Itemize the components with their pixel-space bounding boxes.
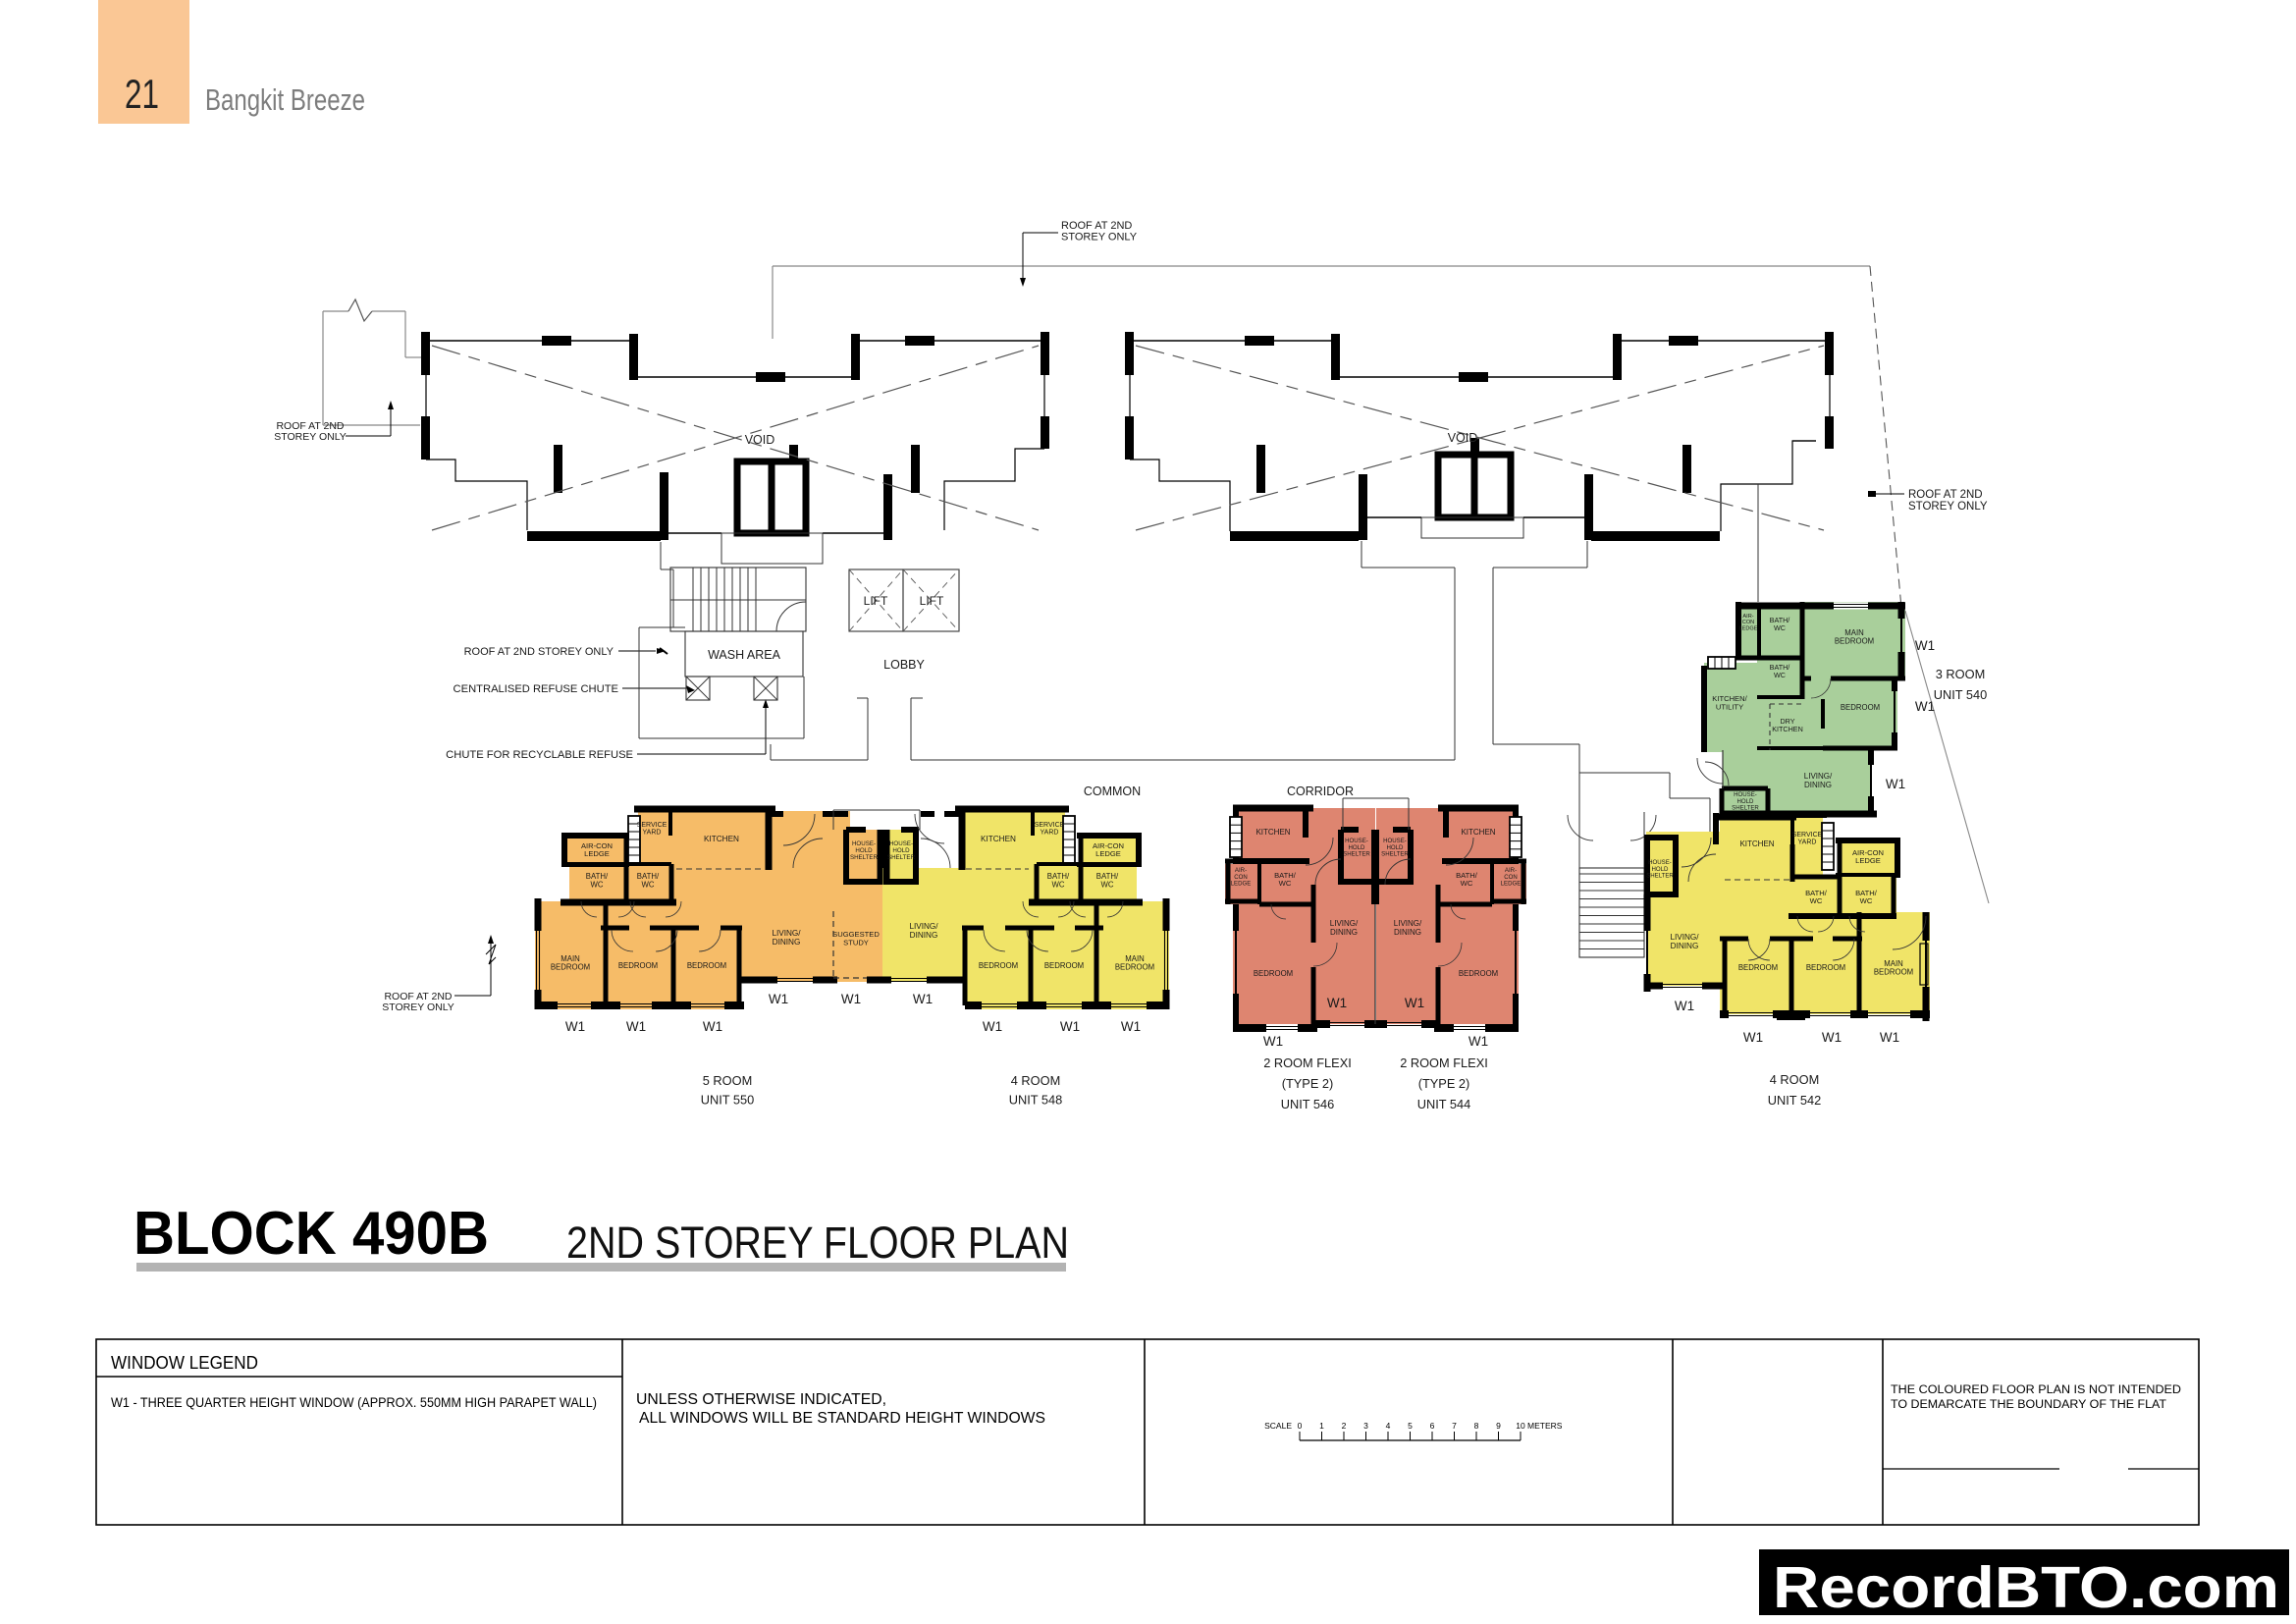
- svg-text:W1: W1: [913, 992, 933, 1006]
- svg-text:W1: W1: [626, 1019, 646, 1034]
- svg-text:BEDROOM: BEDROOM: [551, 963, 590, 972]
- svg-text:STOREY ONLY: STOREY ONLY: [1908, 501, 1988, 513]
- svg-text:2 ROOM FLEXI: 2 ROOM FLEXI: [1400, 1056, 1488, 1070]
- svg-text:RecordBTO.com: RecordBTO.com: [1773, 1555, 2279, 1620]
- svg-text:SERVICE: SERVICE: [1035, 822, 1065, 829]
- svg-text:WC: WC: [1052, 880, 1065, 889]
- svg-text:KITCHEN: KITCHEN: [1739, 839, 1774, 848]
- svg-text:WC: WC: [1860, 896, 1873, 905]
- svg-text:W1: W1: [1327, 996, 1347, 1010]
- svg-text:LEDGE: LEDGE: [1855, 856, 1881, 865]
- svg-text:LEDGE: LEDGE: [584, 849, 610, 858]
- svg-text:W1: W1: [1886, 777, 1905, 791]
- svg-text:BEDROOM: BEDROOM: [1874, 968, 1913, 977]
- svg-text:YARD: YARD: [643, 830, 662, 837]
- svg-text:W1: W1: [1468, 1034, 1488, 1049]
- svg-text:LIVING/: LIVING/: [1330, 919, 1359, 928]
- svg-text:(TYPE 2): (TYPE 2): [1418, 1076, 1470, 1091]
- svg-text:W1: W1: [1405, 996, 1424, 1010]
- svg-text:DINING: DINING: [1804, 781, 1832, 789]
- svg-text:UNIT 548: UNIT 548: [1009, 1093, 1063, 1108]
- svg-text:LEDGE: LEDGE: [1739, 625, 1758, 631]
- svg-text:2: 2: [1342, 1421, 1347, 1431]
- svg-text:W1: W1: [1915, 699, 1935, 714]
- svg-text:SCALE: SCALE: [1264, 1421, 1292, 1431]
- svg-text:W1: W1: [703, 1019, 722, 1034]
- svg-text:SHELTER: SHELTER: [1343, 851, 1370, 858]
- svg-text:CENTRALISED REFUSE CHUTE: CENTRALISED REFUSE CHUTE: [454, 683, 618, 695]
- svg-text:KITCHEN: KITCHEN: [1461, 828, 1495, 837]
- svg-text:ROOF AT 2ND: ROOF AT 2ND: [1908, 489, 1983, 501]
- svg-text:KITCHEN: KITCHEN: [1772, 725, 1803, 733]
- svg-text:VOID: VOID: [1448, 431, 1478, 445]
- svg-text:SHELTER: SHELTER: [850, 854, 879, 861]
- svg-text:WC: WC: [1461, 879, 1473, 888]
- svg-text:8: 8: [1474, 1421, 1479, 1431]
- svg-text:LIVING/: LIVING/: [1394, 919, 1422, 928]
- svg-text:STUDY: STUDY: [843, 939, 869, 947]
- svg-text:LOBBY: LOBBY: [883, 658, 925, 672]
- svg-text:YARD: YARD: [1798, 839, 1817, 846]
- svg-text:SHELTER: SHELTER: [887, 854, 916, 861]
- svg-text:W1: W1: [769, 992, 788, 1006]
- svg-text:LIVING/: LIVING/: [772, 929, 801, 938]
- svg-text:SERVICE: SERVICE: [1792, 832, 1823, 839]
- svg-text:WC: WC: [1101, 880, 1114, 889]
- svg-text:UNIT 546: UNIT 546: [1281, 1097, 1335, 1111]
- svg-text:LIVING/: LIVING/: [909, 922, 938, 931]
- svg-text:W1: W1: [1263, 1034, 1283, 1049]
- svg-text:ROOF AT 2ND: ROOF AT 2ND: [1061, 220, 1132, 232]
- svg-text:4 ROOM: 4 ROOM: [1011, 1073, 1060, 1088]
- svg-text:5: 5: [1408, 1421, 1413, 1431]
- svg-text:DINING: DINING: [773, 938, 801, 947]
- svg-text:WC: WC: [1810, 896, 1823, 905]
- svg-text:LIFT: LIFT: [864, 594, 888, 608]
- svg-text:WC: WC: [1279, 879, 1292, 888]
- svg-text:BEDROOM: BEDROOM: [1841, 703, 1880, 712]
- svg-text:UNIT 540: UNIT 540: [1934, 687, 1988, 702]
- svg-text:0: 0: [1298, 1421, 1303, 1431]
- svg-text:2 ROOM FLEXI: 2 ROOM FLEXI: [1263, 1056, 1352, 1070]
- svg-text:BEDROOM: BEDROOM: [1044, 961, 1084, 970]
- svg-text:BEDROOM: BEDROOM: [687, 961, 726, 970]
- svg-text:6: 6: [1430, 1421, 1435, 1431]
- svg-text:LIVING/: LIVING/: [1670, 933, 1699, 942]
- svg-text:W1: W1: [1822, 1030, 1842, 1045]
- svg-text:W1: W1: [983, 1019, 1002, 1034]
- svg-text:(TYPE 2): (TYPE 2): [1282, 1076, 1334, 1091]
- svg-text:LEDGE: LEDGE: [1095, 849, 1121, 858]
- svg-text:UNIT 542: UNIT 542: [1768, 1093, 1822, 1108]
- svg-text:ROOF AT 2ND STOREY ONLY: ROOF AT 2ND STOREY ONLY: [464, 646, 614, 658]
- svg-text:BEDROOM: BEDROOM: [1806, 963, 1845, 972]
- svg-text:3: 3: [1363, 1421, 1368, 1431]
- svg-text:21: 21: [125, 71, 159, 117]
- svg-text:1: 1: [1319, 1421, 1324, 1431]
- svg-text:DINING: DINING: [1671, 942, 1699, 950]
- svg-text:STOREY ONLY: STOREY ONLY: [274, 431, 347, 443]
- svg-text:SHELTER: SHELTER: [1381, 851, 1409, 858]
- svg-text:W1 - THREE QUARTER HEIGHT WIND: W1 - THREE QUARTER HEIGHT WINDOW (APPROX…: [111, 1394, 597, 1410]
- svg-text:STOREY ONLY: STOREY ONLY: [382, 1001, 454, 1013]
- svg-text:W1: W1: [1675, 999, 1694, 1013]
- svg-text:BLOCK 490B: BLOCK 490B: [133, 1200, 489, 1268]
- svg-text:WC: WC: [1774, 623, 1786, 632]
- svg-text:WINDOW LEGEND: WINDOW LEGEND: [111, 1353, 258, 1373]
- svg-text:W1: W1: [1121, 1019, 1141, 1034]
- svg-text:10: 10: [1516, 1421, 1525, 1431]
- svg-text:UNIT 544: UNIT 544: [1417, 1097, 1471, 1111]
- svg-text:5 ROOM: 5 ROOM: [703, 1073, 752, 1088]
- svg-text:LEDGE: LEDGE: [1231, 881, 1252, 888]
- svg-text:BEDROOM: BEDROOM: [979, 961, 1018, 970]
- svg-text:BEDROOM: BEDROOM: [1115, 963, 1154, 972]
- svg-text:COMMON: COMMON: [1084, 785, 1141, 798]
- svg-text:UTILITY: UTILITY: [1716, 702, 1743, 711]
- svg-text:UNLESS OTHERWISE INDICATED,: UNLESS OTHERWISE INDICATED,: [636, 1391, 886, 1408]
- svg-text:WC: WC: [642, 880, 655, 889]
- svg-text:TO DEMARCATE THE BOUNDARY OF T: TO DEMARCATE THE BOUNDARY OF THE FLAT: [1891, 1397, 2166, 1411]
- svg-text:METERS: METERS: [1527, 1421, 1563, 1431]
- svg-text:Bangkit Breeze: Bangkit Breeze: [205, 82, 365, 117]
- svg-text:THE COLOURED FLOOR PLAN IS NOT: THE COLOURED FLOOR PLAN IS NOT INTENDED: [1891, 1382, 2181, 1396]
- svg-text:CON: CON: [1742, 620, 1754, 625]
- svg-text:4 ROOM: 4 ROOM: [1770, 1072, 1819, 1087]
- svg-text:W1: W1: [565, 1019, 585, 1034]
- svg-text:BEDROOM: BEDROOM: [1738, 963, 1778, 972]
- svg-text:STOREY ONLY: STOREY ONLY: [1061, 232, 1138, 244]
- svg-text:AIR-: AIR-: [1742, 614, 1753, 620]
- svg-text:W1: W1: [841, 992, 861, 1006]
- svg-text:3 ROOM: 3 ROOM: [1936, 667, 1985, 681]
- svg-text:9: 9: [1496, 1421, 1501, 1431]
- svg-text:WASH AREA: WASH AREA: [708, 648, 781, 662]
- svg-text:W1: W1: [1743, 1030, 1763, 1045]
- svg-text:4: 4: [1386, 1421, 1391, 1431]
- svg-text:SHELTER: SHELTER: [1646, 873, 1674, 880]
- svg-text:UNIT 550: UNIT 550: [701, 1093, 755, 1108]
- svg-text:DINING: DINING: [1330, 928, 1358, 937]
- svg-text:LEDGE: LEDGE: [1501, 881, 1522, 888]
- svg-text:BEDROOM: BEDROOM: [618, 961, 658, 970]
- svg-text:W1: W1: [1915, 638, 1935, 653]
- svg-text:KITCHEN: KITCHEN: [981, 835, 1016, 843]
- svg-text:W1: W1: [1880, 1030, 1899, 1045]
- svg-text:KITCHEN: KITCHEN: [1255, 828, 1290, 837]
- svg-text:YARD: YARD: [1041, 830, 1059, 837]
- svg-text:CHUTE FOR RECYCLABLE REFUSE: CHUTE FOR RECYCLABLE REFUSE: [446, 749, 633, 761]
- svg-text:WC: WC: [1774, 671, 1786, 679]
- svg-text:VOID: VOID: [745, 433, 775, 447]
- svg-text:KITCHEN: KITCHEN: [704, 835, 739, 843]
- svg-text:WC: WC: [591, 880, 604, 889]
- svg-text:LIFT: LIFT: [920, 594, 944, 608]
- svg-text:CORRIDOR: CORRIDOR: [1287, 785, 1354, 798]
- svg-text:BEDROOM: BEDROOM: [1459, 969, 1498, 978]
- svg-text:LIVING/: LIVING/: [1804, 772, 1833, 781]
- svg-text:DINING: DINING: [1394, 928, 1421, 937]
- svg-text:BEDROOM: BEDROOM: [1835, 637, 1874, 646]
- svg-text:2ND STOREY FLOOR PLAN: 2ND STOREY FLOOR PLAN: [566, 1218, 1069, 1268]
- svg-text:SHELTER: SHELTER: [1732, 805, 1759, 812]
- svg-text:SERVICE: SERVICE: [637, 822, 667, 829]
- svg-text:BEDROOM: BEDROOM: [1254, 969, 1293, 978]
- svg-text:DINING: DINING: [910, 931, 938, 940]
- svg-text:ALL WINDOWS WILL BE STANDARD H: ALL WINDOWS WILL BE STANDARD HEIGHT WIND…: [639, 1410, 1045, 1427]
- svg-text:W1: W1: [1060, 1019, 1080, 1034]
- svg-text:7: 7: [1452, 1421, 1457, 1431]
